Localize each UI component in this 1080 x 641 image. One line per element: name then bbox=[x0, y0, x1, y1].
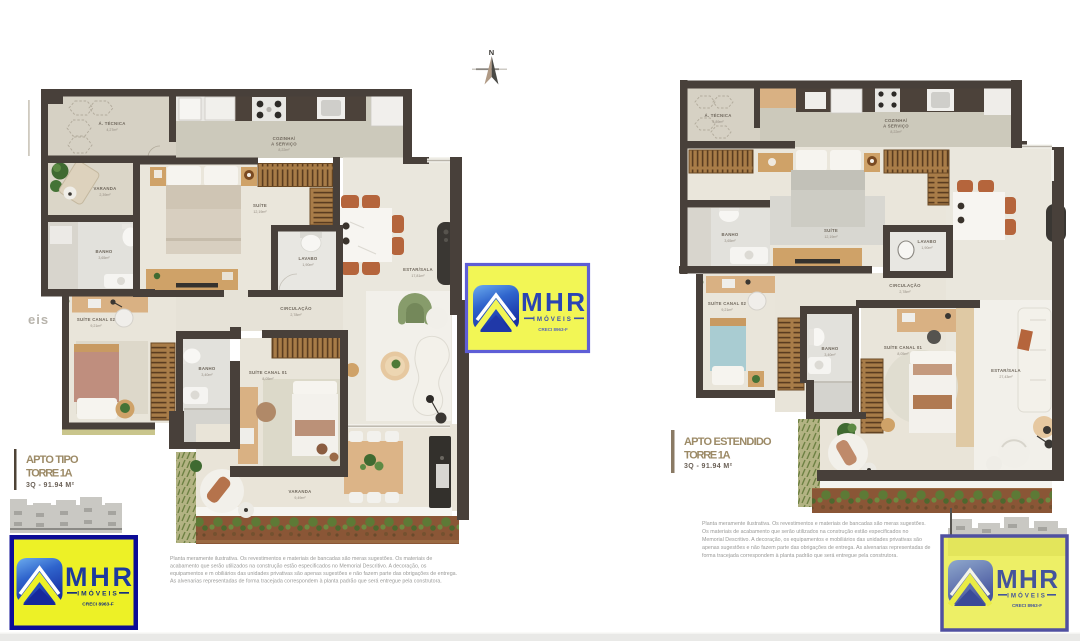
svg-text:8,22m²: 8,22m² bbox=[278, 148, 290, 152]
svg-text:IMÓVEIS: IMÓVEIS bbox=[1007, 592, 1047, 600]
svg-text:Os materiais de acabamento que: Os materiais de acabamento que serão uti… bbox=[702, 529, 908, 535]
svg-text:3,65m²: 3,65m² bbox=[98, 256, 110, 260]
svg-text:SUÍTE CANAL 02: SUÍTE CANAL 02 bbox=[77, 317, 116, 322]
svg-text:SUÍTE CANAL 01: SUÍTE CANAL 01 bbox=[249, 370, 288, 375]
svg-text:acabamento que serão utilizado: acabamento que serão utilizados na const… bbox=[170, 564, 427, 570]
svg-text:TORRE 1A: TORRE 1A bbox=[684, 450, 731, 462]
svg-text:9,21m²: 9,21m² bbox=[90, 324, 102, 328]
svg-text:A SERVIÇO: A SERVIÇO bbox=[883, 124, 909, 129]
svg-text:2,78m²: 2,78m² bbox=[899, 290, 911, 294]
svg-text:4,27m²: 4,27m² bbox=[106, 128, 118, 132]
svg-text:8,22m²: 8,22m² bbox=[890, 130, 902, 134]
svg-text:27,43m²: 27,43m² bbox=[999, 375, 1013, 379]
svg-text:3,89m²: 3,89m² bbox=[712, 120, 724, 124]
svg-text:12,19m²: 12,19m² bbox=[253, 210, 267, 214]
svg-text:CIRCULAÇÃO: CIRCULAÇÃO bbox=[280, 306, 312, 311]
svg-text:LAVABO: LAVABO bbox=[917, 239, 936, 244]
svg-text:IMÓVEIS: IMÓVEIS bbox=[533, 315, 573, 323]
svg-text:CRECI 8963-F: CRECI 8963-F bbox=[538, 327, 568, 332]
svg-text:MHR: MHR bbox=[65, 562, 132, 592]
svg-text:8,05m²: 8,05m² bbox=[897, 352, 909, 356]
svg-text:COZINHA/: COZINHA/ bbox=[885, 118, 908, 123]
svg-text:9,21m²: 9,21m² bbox=[721, 308, 733, 312]
svg-text:12,19m²: 12,19m² bbox=[824, 235, 838, 239]
svg-text:Á. TÉCNICA: Á. TÉCNICA bbox=[98, 121, 125, 126]
svg-text:apenas sugestões e não fazem p: apenas sugestões e não fazem parte das o… bbox=[702, 545, 931, 551]
svg-text:SUÍTE CANAL 02: SUÍTE CANAL 02 bbox=[708, 301, 747, 306]
svg-text:APTO ESTENDIDO: APTO ESTENDIDO bbox=[684, 436, 772, 448]
svg-text:8,05m²: 8,05m² bbox=[262, 377, 274, 381]
svg-text:VARANDA: VARANDA bbox=[289, 489, 312, 494]
svg-text:eis: eis bbox=[28, 312, 49, 327]
svg-text:CRECI 8963-F: CRECI 8963-F bbox=[1012, 603, 1042, 608]
svg-text:Planta meramente ilustrativa.: Planta meramente ilustrativa. Os revesti… bbox=[702, 521, 926, 527]
svg-text:N: N bbox=[489, 48, 494, 57]
svg-text:IMÓVEIS: IMÓVEIS bbox=[77, 589, 118, 598]
svg-text:SUÍTE: SUÍTE bbox=[824, 228, 838, 233]
svg-text:9,49m²: 9,49m² bbox=[294, 496, 306, 500]
svg-text:forma tracejada correspondem à: forma tracejada correspondem à planta pa… bbox=[702, 553, 898, 559]
svg-text:ESTAR/SALA: ESTAR/SALA bbox=[991, 368, 1021, 373]
svg-text:VARANDA: VARANDA bbox=[94, 186, 117, 191]
svg-text:BANHO: BANHO bbox=[198, 366, 215, 371]
svg-text:1,90m²: 1,90m² bbox=[302, 263, 314, 267]
svg-text:A SERVIÇO: A SERVIÇO bbox=[271, 142, 297, 147]
svg-text:MHR: MHR bbox=[521, 287, 585, 317]
svg-text:LAVABO: LAVABO bbox=[298, 256, 317, 261]
svg-text:3Q - 91.94 M²: 3Q - 91.94 M² bbox=[684, 463, 733, 470]
svg-text:APTO TIPO: APTO TIPO bbox=[26, 454, 79, 466]
svg-text:SUÍTE: SUÍTE bbox=[253, 203, 267, 208]
svg-text:BANHO: BANHO bbox=[95, 249, 112, 254]
svg-text:MHR: MHR bbox=[996, 564, 1058, 594]
svg-text:COZINHA/: COZINHA/ bbox=[273, 136, 296, 141]
svg-text:Memorial Descritivo. A decoraç: Memorial Descritivo. A decoração, os equ… bbox=[702, 537, 922, 543]
svg-text:2,78m²: 2,78m² bbox=[290, 313, 302, 317]
svg-text:ESTAR/SALA: ESTAR/SALA bbox=[403, 267, 433, 272]
svg-text:TORRE 1A: TORRE 1A bbox=[26, 468, 73, 480]
svg-text:17,81m²: 17,81m² bbox=[411, 274, 425, 278]
svg-text:CRECI 8963-F: CRECI 8963-F bbox=[82, 602, 114, 608]
svg-text:Á. TÉCNICA: Á. TÉCNICA bbox=[704, 113, 731, 118]
svg-text:3,40m²: 3,40m² bbox=[824, 353, 836, 357]
svg-text:Planta meramente ilustrativa.: Planta meramente ilustrativa. Os revesti… bbox=[170, 556, 432, 562]
svg-text:As alvenarias representadas de: As alvenarias representadas de forma tra… bbox=[170, 579, 442, 585]
svg-text:BANHO: BANHO bbox=[721, 232, 738, 237]
svg-text:2,39m²: 2,39m² bbox=[99, 193, 111, 197]
svg-text:equipamentos e m obiliários da: equipamentos e m obiliários das unidades… bbox=[170, 571, 457, 577]
svg-text:3,65m²: 3,65m² bbox=[724, 239, 736, 243]
svg-text:BANHO: BANHO bbox=[821, 346, 838, 351]
svg-text:3,40m²: 3,40m² bbox=[201, 373, 213, 377]
svg-text:3Q - 91.94 M²: 3Q - 91.94 M² bbox=[26, 482, 75, 489]
svg-text:1,90m²: 1,90m² bbox=[921, 246, 933, 250]
svg-text:CIRCULAÇÃO: CIRCULAÇÃO bbox=[889, 283, 921, 288]
svg-text:SUÍTE CANAL 01: SUÍTE CANAL 01 bbox=[884, 345, 923, 350]
